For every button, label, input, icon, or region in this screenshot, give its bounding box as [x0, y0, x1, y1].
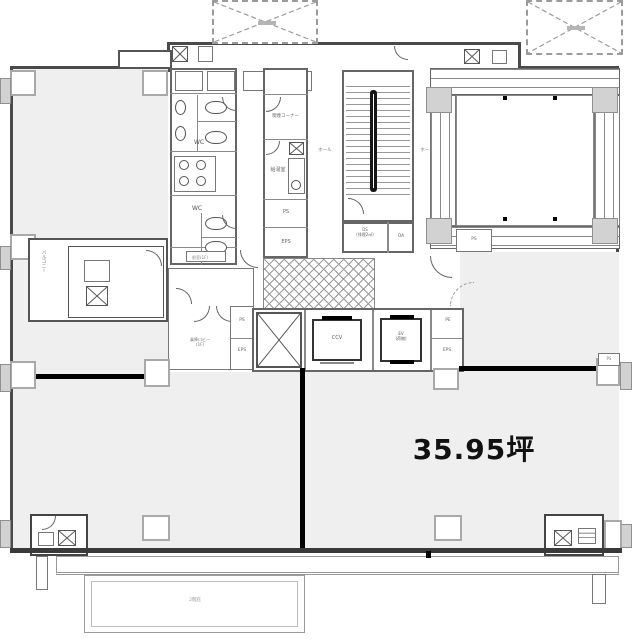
bottom-wall: [10, 548, 622, 553]
room-label-smoking: 喫煙コーナー: [263, 114, 308, 119]
column: [434, 515, 462, 541]
shaft-label-pe: PE: [436, 318, 460, 323]
parapet-step: [118, 50, 172, 69]
duct-x-icon: [289, 142, 304, 155]
shaft-label-eps-elevator: EPS: [434, 348, 460, 353]
demising-line-center: [300, 368, 305, 552]
room-label-ds: DS (排煙2㎡): [343, 228, 387, 237]
column: [10, 361, 36, 389]
stair-center-line: [373, 94, 374, 188]
elevator-door: [390, 315, 414, 319]
void-inner: [456, 95, 594, 226]
wall-segment: [170, 195, 237, 196]
tenant-area-right-mid: [460, 252, 619, 372]
column: [426, 218, 452, 244]
post: [592, 574, 606, 604]
utility-box: [492, 50, 507, 64]
floor-plan: WC WC 喫煙コーナー 給湯室 PS EPS ホール ホール DS (排煙2㎡…: [0, 0, 632, 640]
shaft-label-ps-lobby: PS: [232, 318, 252, 323]
column-bump: [0, 246, 11, 270]
room-label-wc-lower: WC: [182, 206, 212, 213]
equipment-box: [578, 528, 596, 544]
shaft-label-eps: EPS: [274, 240, 298, 246]
room-label-wc-upper: WC: [184, 140, 214, 147]
void-tick: [503, 96, 507, 100]
room-label-hall-left: ホール: [310, 148, 340, 153]
tenant-area-bottom-left: [168, 372, 300, 552]
area-label: 35.95坪: [396, 434, 552, 466]
shaft-x-icon: [58, 530, 76, 546]
shaft-label-eps-lobby: EPS: [230, 348, 254, 353]
urinal-icon: [175, 126, 186, 141]
wall-segment: [263, 227, 308, 228]
column-bump: [0, 520, 11, 548]
rooftop-note: [567, 26, 585, 30]
elevator-door: [390, 360, 414, 364]
column: [592, 218, 618, 244]
column-bump: [620, 362, 632, 390]
void-tick: [503, 217, 507, 221]
room-label-balcony: バルコニー: [36, 250, 46, 273]
shaft-label-ps-void: PS: [462, 237, 486, 242]
column: [142, 515, 170, 541]
room-label-oa: OA: [389, 234, 413, 239]
wall-segment: [263, 139, 308, 140]
wall-segment: [170, 93, 237, 94]
void-louver-left: [430, 95, 456, 226]
balcony-strip: [56, 556, 619, 575]
vent-x-icon: [464, 49, 480, 64]
vent-x-icon: [172, 46, 188, 62]
wall-segment: [372, 310, 374, 370]
corridor-note: 前室(1F): [180, 256, 220, 261]
void-tick: [553, 96, 557, 100]
wall-segment: [170, 151, 237, 152]
column-bump: [0, 364, 11, 392]
shaft-x-icon: [86, 286, 108, 306]
basin-icon: [196, 176, 206, 186]
equipment-box: [84, 260, 110, 282]
shaft-x-icon: [554, 530, 572, 546]
wall-segment: [304, 310, 306, 370]
column: [10, 70, 36, 96]
urinal-icon: [175, 100, 186, 115]
equipment-box: [38, 532, 54, 546]
demising-line-right: [459, 366, 619, 371]
wall-segment: [230, 338, 254, 339]
basin-icon: [196, 160, 206, 170]
rooftop-shaft-icon: [526, 0, 623, 55]
canopy-inner: [91, 581, 298, 627]
column: [592, 87, 618, 113]
crosshatch-lobby: [263, 258, 375, 310]
ds-line2: (排煙2㎡): [356, 232, 374, 237]
shaft-label-ps: PS: [276, 210, 296, 216]
elevator-ccv-label: CCV: [314, 336, 360, 342]
column: [604, 520, 622, 550]
rooftop-note: [258, 21, 276, 25]
wall-segment: [430, 310, 432, 370]
column: [433, 368, 459, 390]
fire-elevator-shaft: [256, 312, 302, 368]
balcony-tick: [426, 551, 431, 558]
column: [142, 70, 168, 96]
rooftop-shaft-icon: [212, 0, 318, 44]
elevator-service-label: EV (荷物): [382, 332, 420, 341]
wall-segment: [432, 338, 462, 339]
lobby-line2: (1F): [196, 342, 204, 347]
column-bump: [0, 78, 11, 104]
void-louver-right: [594, 95, 620, 226]
canopy-label: 2階庇: [140, 598, 250, 603]
column: [144, 359, 170, 387]
shaft-label-ps-wall: PS: [600, 357, 618, 362]
utility-box: [198, 46, 213, 62]
basin-icon: [179, 160, 189, 170]
wall-segment: [263, 94, 308, 95]
stall-partition: [201, 237, 236, 238]
stair-treads-icon: [346, 86, 410, 196]
stall-partition: [197, 121, 236, 122]
utility-box: [207, 71, 235, 91]
post: [36, 556, 48, 590]
wall-segment: [263, 199, 308, 200]
ev-line2: (荷物): [395, 336, 406, 341]
void-tick: [553, 217, 557, 221]
room-label-lobby: 乗降ロビー (1F): [172, 338, 228, 347]
basin-icon: [179, 176, 189, 186]
utility-box: [175, 71, 203, 91]
sink-bowl-icon: [291, 180, 301, 190]
elevator-sill: [320, 362, 354, 364]
column: [426, 87, 452, 113]
elevator-door: [322, 316, 352, 320]
